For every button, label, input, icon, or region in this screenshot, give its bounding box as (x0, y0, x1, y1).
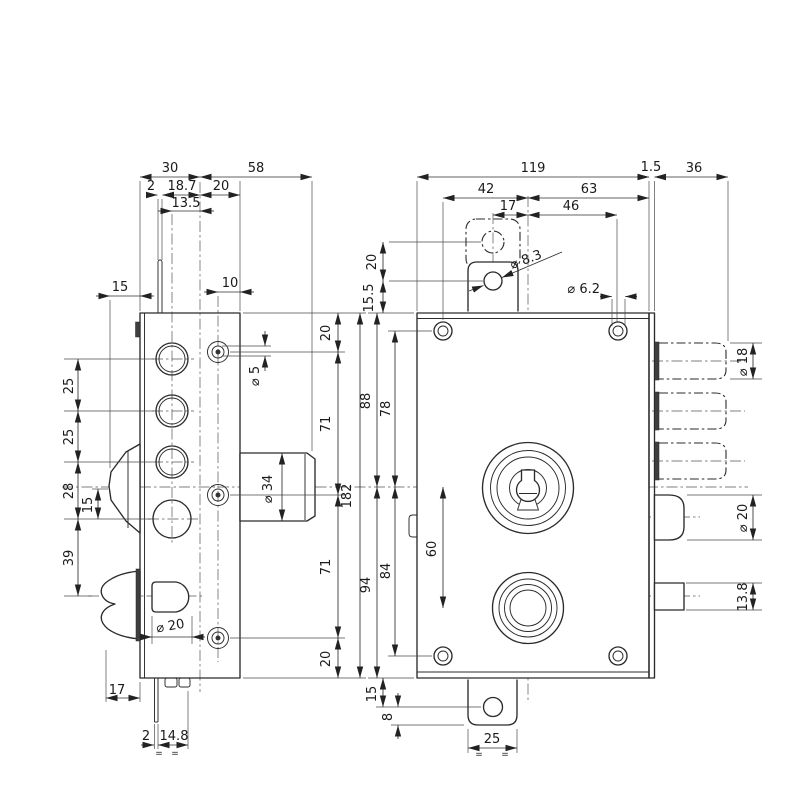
dim-20-tab-label: 20 (365, 254, 380, 271)
dim-63-label: 63 (581, 182, 598, 197)
dim-14-8-label: 14.8 (160, 729, 189, 744)
side-view-body (101, 260, 315, 722)
dim-58-label: 58 (248, 161, 265, 176)
dim-dia34-label: ⌀ 34 (261, 475, 276, 504)
dim-13-5-label: 13.5 (172, 196, 201, 211)
dim-dia20-label: ⌀ 20 (155, 617, 186, 637)
dim-71-col-bottom-label: 71 (319, 559, 334, 576)
dim-13-8-label: 13.8 (736, 583, 751, 612)
dim-15-cam-label: 15 (81, 497, 96, 514)
dim-dia8-3-label: ⌀ 8.3 (508, 247, 544, 272)
dim-15-5-label: 15.5 (362, 284, 377, 313)
equal-mark: = (501, 750, 509, 760)
side-view: 30 58 2 18.7 20 13.5 15 10 25 25 28 15 3… (62, 161, 366, 759)
cylinder-housing-side (240, 453, 315, 521)
thumbturn-knob-profile (101, 571, 140, 639)
dim-71-col-top-label: 71 (319, 416, 334, 433)
dim-15-tab-label: 15 (365, 686, 380, 703)
dim-25a-label: 25 (62, 378, 77, 395)
dim-42-label: 42 (478, 182, 495, 197)
cylinder-cam-profile (109, 444, 140, 533)
dim-182-label: 182 (340, 484, 355, 509)
dim-46-label: 46 (563, 199, 580, 214)
dim-78-label: 78 (379, 401, 394, 418)
dim-dia5-label: ⌀ 5 (248, 366, 263, 386)
dim-2-top-label: 2 (147, 179, 155, 194)
dim-20-top-label: 20 (213, 179, 230, 194)
latch-bolt-front (655, 495, 685, 540)
dim-18-7-label: 18.7 (168, 179, 197, 194)
dim-20-col-bottom-label: 20 (319, 651, 334, 668)
dim-dia20-label: ⌀ 20 (736, 504, 751, 533)
dim-84-label: 84 (379, 563, 394, 580)
dim-28-label: 28 (62, 483, 77, 500)
dim-39-label: 39 (62, 550, 77, 567)
dim-dia18-label: ⌀ 18 (736, 348, 751, 377)
left-edge-catch (409, 515, 417, 537)
dim-17-label: 17 (109, 683, 126, 698)
case-foot (179, 678, 190, 687)
case-foot (165, 678, 177, 687)
faceplate (649, 313, 655, 678)
dim-94-label: 94 (359, 577, 374, 594)
bottom-fixing-tab (468, 680, 517, 725)
dim-36-label: 36 (686, 161, 703, 176)
dim-dia6-2-label: ⌀ 6.2 (567, 282, 600, 297)
bolt-stub (655, 342, 660, 380)
front-view: 119 1.5 36 42 63 17 46 ⌀ 8.3 ⌀ 6.2 20 15… (359, 160, 762, 760)
bottom-tab-hole (484, 698, 503, 717)
dim-10-label: 10 (222, 276, 239, 291)
dim-30-label: 30 (162, 161, 179, 176)
fixing-screws (208, 342, 229, 649)
bolt-stub (655, 392, 660, 430)
dim-25-label: 25 (484, 732, 501, 747)
dim-88-label: 88 (359, 393, 374, 410)
latch-bolt-side (152, 582, 189, 612)
edge-catch (136, 322, 141, 337)
equal-mark: = (155, 749, 163, 759)
dim-17-label: 17 (500, 199, 517, 214)
top-rod (158, 260, 162, 313)
dim-8-tab-label: 8 (381, 713, 396, 721)
dim-15-top-label: 15 (112, 280, 129, 295)
dim-2-bottom-label: 2 (142, 729, 150, 744)
dim-25b-label: 25 (62, 429, 77, 446)
bolt-stub (655, 442, 660, 480)
lock-technical-drawing: 30 58 2 18.7 20 13.5 15 10 25 25 28 15 3… (0, 0, 800, 800)
auxiliary-bolt (655, 583, 685, 610)
dim-20-col-top-label: 20 (319, 325, 334, 342)
equal-mark: = (171, 749, 179, 759)
knob-shank (136, 569, 140, 641)
dim-119-label: 119 (521, 161, 546, 176)
top-fixing-tab (468, 262, 518, 311)
lock-technical-drawing-page: 30 58 2 18.7 20 13.5 15 10 25 25 28 15 3… (0, 0, 800, 800)
equal-mark: = (475, 750, 483, 760)
dim-60-label: 60 (425, 541, 440, 558)
bottom-rod (155, 678, 159, 722)
dim-1-5-label: 1.5 (641, 160, 662, 175)
